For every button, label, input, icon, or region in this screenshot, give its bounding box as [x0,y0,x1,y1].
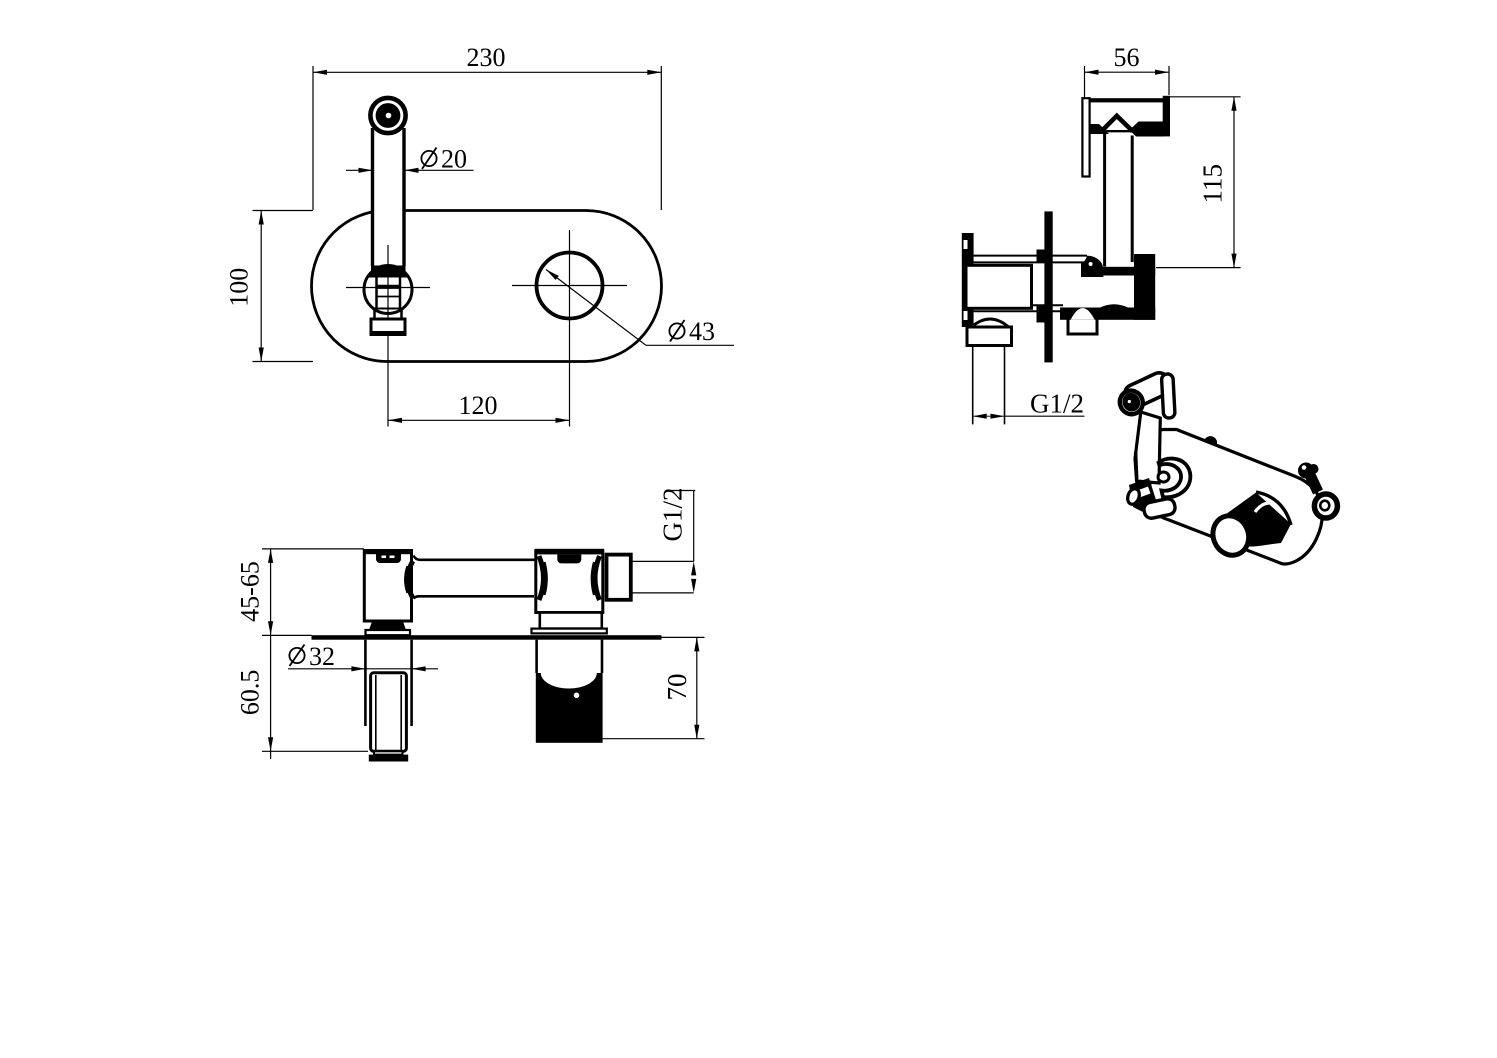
svg-text:115: 115 [1198,164,1228,204]
svg-text:60.5: 60.5 [236,670,265,716]
svg-text:100: 100 [225,268,254,307]
svg-text:G1/2: G1/2 [658,488,688,542]
svg-text:120: 120 [459,391,498,420]
svg-text:G1/2: G1/2 [1030,389,1084,419]
svg-text:70: 70 [662,674,692,701]
svg-text:56: 56 [1114,43,1140,72]
svg-text:32: 32 [309,642,335,671]
svg-text:45-65: 45-65 [236,561,265,622]
svg-text:20: 20 [441,145,467,174]
svg-text:43: 43 [689,317,715,346]
svg-text:230: 230 [467,43,506,72]
